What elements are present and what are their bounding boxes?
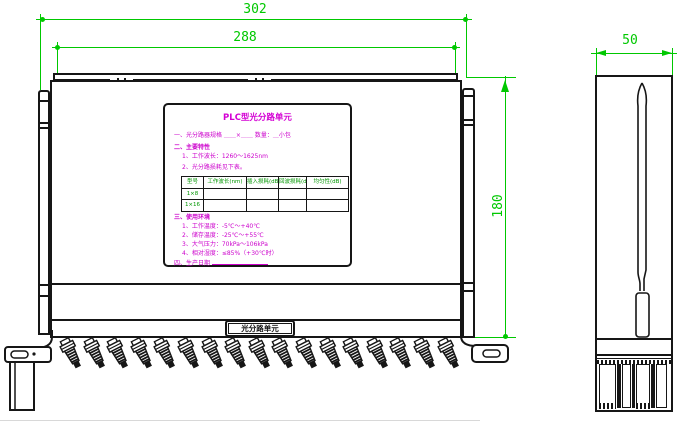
connector-row (54, 339, 464, 387)
nameplate-section3-item: 2、储存温度：-25℃～+55℃ (182, 232, 264, 239)
table-cell (279, 189, 307, 200)
nameplate-section3-item: 1、工作温度：-5℃～+40℃ (182, 223, 260, 230)
table-row: 1×16 (182, 200, 348, 211)
side-slat (622, 364, 631, 408)
dimension-180-arrow-top (501, 80, 509, 92)
rail-mark (464, 119, 473, 121)
dimension-50-arrow-left (596, 50, 606, 56)
table-header-cell: 插入损耗(dB) (247, 177, 279, 189)
rail-mark (40, 127, 48, 129)
nameplate-section3-item: 3、大气压力：70kPa～106kPa (182, 241, 268, 248)
side-slat (636, 364, 650, 408)
nameplate-footer-label: 四、生产日期 (174, 260, 210, 267)
side-slat-gap (632, 364, 635, 408)
rail-mark (464, 282, 473, 284)
dimension-50-arrow-right (662, 50, 672, 56)
fiber-port-connector (433, 334, 466, 373)
nameplate-section3-heading: 三、使用环境 (174, 214, 210, 221)
body-divider-line-upper (52, 283, 460, 285)
table-header-cell: 均匀性(dB) (307, 177, 348, 189)
nameplate-title: PLC型光分路单元 (165, 111, 350, 123)
dimension-302-line (36, 19, 472, 20)
side-slat (656, 364, 667, 408)
nameplate: PLC型光分路单元 一、光分路器规格 ＿＿×＿＿ 数量：＿小包 二、主要特性 1… (163, 103, 352, 267)
panel-label-text: 光分路单元 (228, 323, 292, 334)
table-header-cell: 型号 (182, 177, 204, 189)
side-band-line (597, 338, 671, 340)
panel-label-box: 光分路单元 (225, 320, 295, 337)
side-band-line (597, 358, 671, 359)
rail-mark (464, 290, 473, 292)
table-cell (204, 200, 247, 211)
dimension-50-label: 50 (600, 33, 660, 48)
rail-mark (40, 100, 48, 102)
table-header-row: 型号工作波长(nm)插入损耗(dB)回波损耗(dB)均匀性(dB) (182, 177, 348, 189)
dimension-288-ext-left (57, 42, 58, 73)
nameplate-section2-item: 1、工作波长：1260～1625nm (182, 153, 268, 160)
table-header-cell: 工作波长(nm) (204, 177, 247, 189)
spec-table: 型号工作波长(nm)插入损耗(dB)回波损耗(dB)均匀性(dB)1×81×16 (181, 176, 349, 212)
side-band-line (597, 354, 671, 356)
dimension-302-label: 302 (200, 2, 310, 17)
rail-mark (464, 124, 473, 126)
dimension-50-ext-right (672, 48, 673, 75)
dimension-180-line (505, 76, 506, 337)
side-slot (628, 80, 658, 342)
nameplate-section3-item: 4、相对湿度：≤85%（+30℃时） (182, 250, 278, 257)
dimension-50-ext-left (596, 48, 597, 75)
table-cell (279, 200, 307, 211)
dimension-288-line (52, 47, 460, 48)
nameplate-section2-item: 2、光分路损耗见下表。 (182, 164, 246, 171)
table-header-cell: 回波损耗(dB) (279, 177, 307, 189)
dimension-180-ext-top (466, 77, 516, 78)
dimension-302-ext-left (40, 14, 41, 90)
nameplate-footer: 四、生产日期 (174, 260, 268, 267)
side-hatch-strip (636, 403, 650, 409)
table-cell: 1×16 (182, 200, 204, 211)
cad-drawing-canvas: 302 288 50 180 (0, 0, 685, 423)
dimension-288-ext-right (455, 42, 456, 73)
rail-mark (40, 284, 48, 286)
rail-mark (40, 295, 48, 297)
dimension-180-label: 180 (491, 186, 505, 226)
side-slat-gap (651, 364, 655, 408)
dimension-288-label: 288 (190, 30, 300, 45)
table-cell (307, 189, 348, 200)
nameplate-footer-blank (212, 264, 268, 265)
nameplate-section2-heading: 二、主要特性 (174, 144, 210, 151)
rail-mark (40, 122, 48, 124)
side-slat (599, 364, 616, 408)
side-hatch-strip (599, 403, 616, 409)
table-cell (204, 189, 247, 200)
artifact-line (0, 420, 480, 421)
rail-mark (464, 95, 473, 97)
nameplate-line1: 一、光分路器规格 ＿＿×＿＿ 数量：＿小包 (174, 132, 291, 139)
side-slat-gap (617, 364, 621, 408)
table-cell (247, 189, 279, 200)
table-cell (247, 200, 279, 211)
table-row: 1×8 (182, 189, 348, 200)
table-cell (307, 200, 348, 211)
dimension-302-ext-right (466, 14, 467, 77)
table-cell: 1×8 (182, 189, 204, 200)
